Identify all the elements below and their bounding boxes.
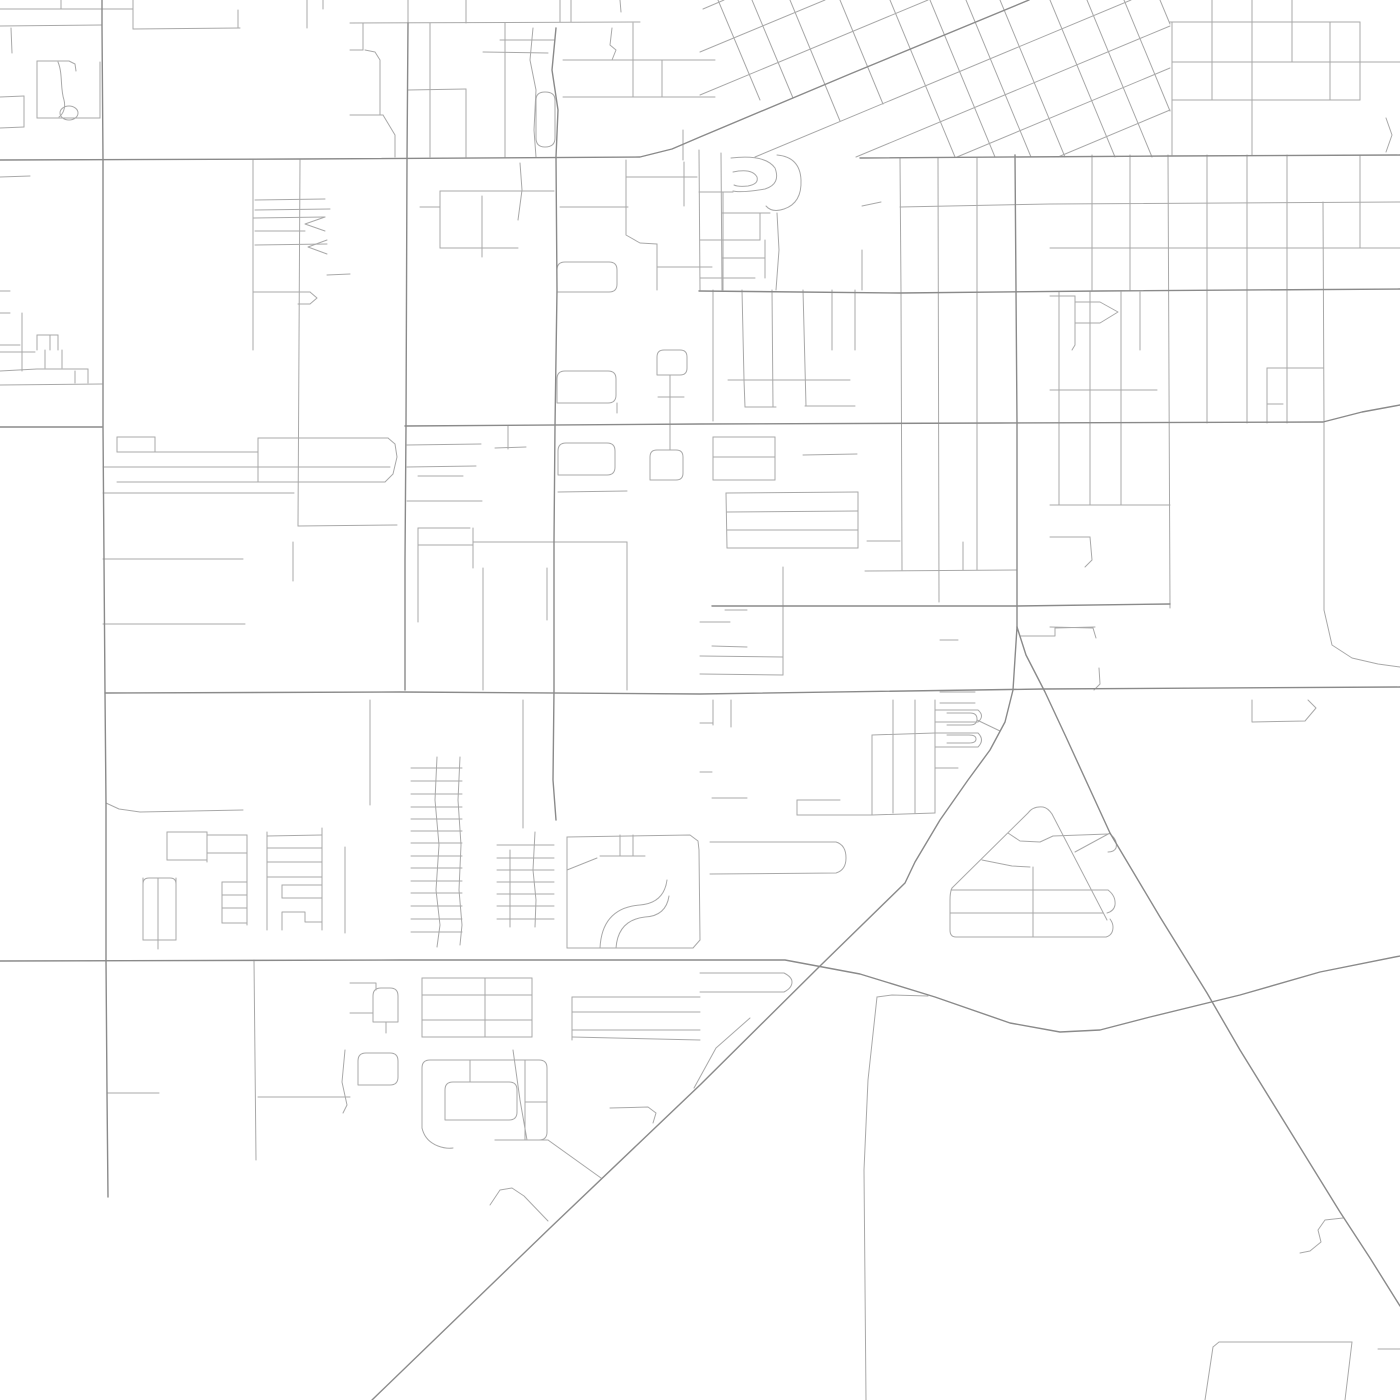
road-segment (726, 493, 727, 548)
road-curve (700, 973, 792, 992)
road-segment (37, 61, 76, 71)
road-curve (766, 155, 801, 210)
road-segment (0, 127, 24, 128)
road-curve (557, 371, 616, 403)
road-segment (1015, 155, 1017, 627)
road-segment (1058, 110, 1170, 157)
road-segment (1345, 1342, 1352, 1400)
road-segment (1085, 537, 1092, 567)
minor-roads-layer (0, 0, 1400, 1400)
road-segment (567, 940, 700, 948)
road-segment (840, 0, 883, 104)
street-map-canvas[interactable] (0, 0, 1400, 1400)
road-segment (727, 511, 858, 512)
road-segment (407, 444, 481, 445)
road-segment (742, 290, 745, 407)
road-curve (947, 735, 976, 743)
road-segment (1300, 1218, 1343, 1253)
road-segment (930, 0, 995, 157)
road-segment (865, 570, 1017, 571)
road-segment (856, 26, 1170, 157)
road-segment (966, 0, 1031, 157)
road-segment (803, 290, 806, 406)
road-curve (657, 350, 687, 375)
road-segment (1205, 1347, 1213, 1400)
road-segment (1386, 118, 1392, 152)
road-segment (1052, 814, 1107, 920)
road-segment (106, 803, 243, 812)
road-segment (977, 720, 1000, 731)
road-curve (733, 171, 757, 187)
road-segment (1017, 627, 1400, 1306)
road-curve (1106, 919, 1113, 937)
road-segment (405, 23, 408, 690)
road-segment (755, 0, 1131, 157)
road-segment (385, 438, 397, 482)
road-segment (694, 1018, 750, 1088)
road-segment (495, 447, 526, 448)
road-curve (558, 443, 615, 475)
road-segment (102, 0, 108, 1197)
road-segment (1094, 668, 1100, 690)
road-segment (0, 384, 102, 385)
road-segment (254, 960, 256, 1160)
road-segment (0, 369, 37, 371)
road-curve (935, 710, 982, 722)
road-segment (864, 997, 877, 1400)
road-segment (700, 0, 928, 95)
road-segment (872, 813, 935, 815)
road-segment (267, 835, 322, 836)
road-curve (710, 842, 846, 874)
road-segment (350, 22, 640, 23)
road-segment (1008, 833, 1108, 842)
road-segment (298, 292, 317, 304)
road-segment (327, 274, 350, 275)
road-segment (776, 213, 779, 290)
road-segment (558, 491, 627, 492)
road-segment (458, 757, 462, 945)
road-segment (1020, 627, 1095, 636)
road-segment (1323, 202, 1324, 610)
road-curve (1107, 890, 1115, 913)
road-segment (548, 1140, 601, 1178)
road-curve (557, 262, 617, 292)
road-segment (552, 28, 558, 820)
road-curve (422, 1060, 547, 1140)
road-segment (803, 454, 857, 455)
road-segment (1087, 0, 1152, 157)
road-segment (483, 52, 548, 53)
road-segment (862, 202, 881, 206)
road-segment (952, 813, 1028, 888)
road-segment (726, 492, 858, 493)
road-segment (408, 89, 466, 90)
road-curve (616, 896, 669, 948)
road-segment (699, 850, 700, 940)
road-segment (407, 466, 476, 467)
road-segment (877, 995, 928, 997)
road-segment (872, 733, 935, 735)
road-segment (699, 150, 700, 290)
road-curve (650, 450, 683, 480)
road-segment (342, 1050, 347, 1113)
road-segment (350, 983, 376, 990)
road-segment (712, 646, 747, 647)
road-segment (700, 674, 783, 675)
road-segment (1124, 0, 1170, 111)
road-segment (752, 0, 793, 98)
road-segment (1000, 0, 1065, 157)
road-segment (533, 832, 536, 927)
road-curve (143, 878, 176, 884)
street-map[interactable] (0, 0, 1400, 1400)
road-segment (0, 176, 30, 177)
road-segment (298, 525, 397, 526)
road-segment (0, 96, 24, 97)
road-segment (372, 627, 1017, 1400)
major-roads-layer (0, 0, 1400, 1400)
road-segment (298, 160, 300, 526)
road-segment (721, 153, 722, 290)
road-segment (620, 0, 621, 12)
road-segment (982, 860, 1030, 867)
road-curve (358, 1053, 398, 1085)
road-segment (1075, 302, 1118, 323)
road-segment (626, 160, 657, 244)
road-segment (0, 956, 1400, 1032)
road-segment (567, 858, 597, 870)
road-segment (572, 1037, 700, 1040)
road-curve (947, 713, 977, 725)
road-segment (405, 405, 1400, 426)
road-segment (1050, 0, 1115, 157)
road-segment (1050, 627, 1096, 638)
road-segment (0, 25, 102, 26)
road-segment (365, 50, 380, 115)
road-segment (133, 28, 240, 29)
road-curve (445, 1082, 517, 1120)
road-segment (305, 217, 325, 231)
road-segment (1252, 700, 1316, 722)
road-curve (373, 988, 398, 1022)
road-segment (11, 28, 12, 53)
road-segment (700, 656, 783, 657)
road-segment (699, 289, 1400, 293)
road-segment (890, 0, 955, 157)
road-segment (383, 115, 395, 157)
road-curve (422, 1128, 453, 1148)
road-segment (790, 0, 840, 121)
road-segment (712, 604, 1170, 606)
road-segment (1213, 1342, 1352, 1347)
road-segment (0, 0, 1029, 160)
road-segment (900, 158, 902, 570)
road-segment (282, 912, 322, 930)
road-segment (1075, 833, 1110, 852)
road-segment (772, 290, 773, 407)
road-segment (253, 217, 325, 218)
road-segment (530, 28, 536, 157)
road-segment (900, 202, 1400, 207)
road-segment (105, 687, 1400, 694)
road-segment (1324, 610, 1400, 667)
road-segment (255, 199, 325, 200)
road-segment (308, 240, 327, 254)
road-segment (1168, 155, 1170, 608)
road-segment (610, 28, 616, 60)
road-curve (536, 92, 555, 147)
road-curve (1028, 807, 1052, 814)
road-segment (255, 209, 330, 210)
road-segment (610, 1107, 656, 1123)
road-segment (938, 158, 939, 602)
road-segment (490, 1188, 548, 1221)
road-segment (1160, 0, 1170, 24)
